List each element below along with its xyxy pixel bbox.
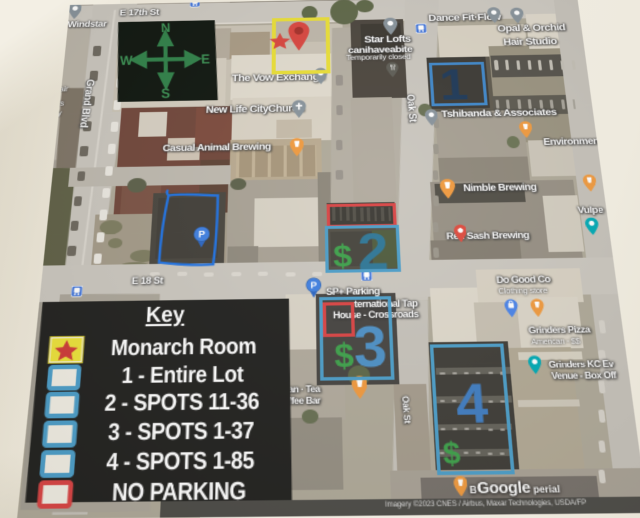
svg-text:E: E xyxy=(201,52,210,67)
svg-text:S: S xyxy=(161,86,170,101)
svg-text:W: W xyxy=(120,53,133,68)
svg-text:N: N xyxy=(161,21,171,35)
svg-text:P: P xyxy=(310,279,316,290)
